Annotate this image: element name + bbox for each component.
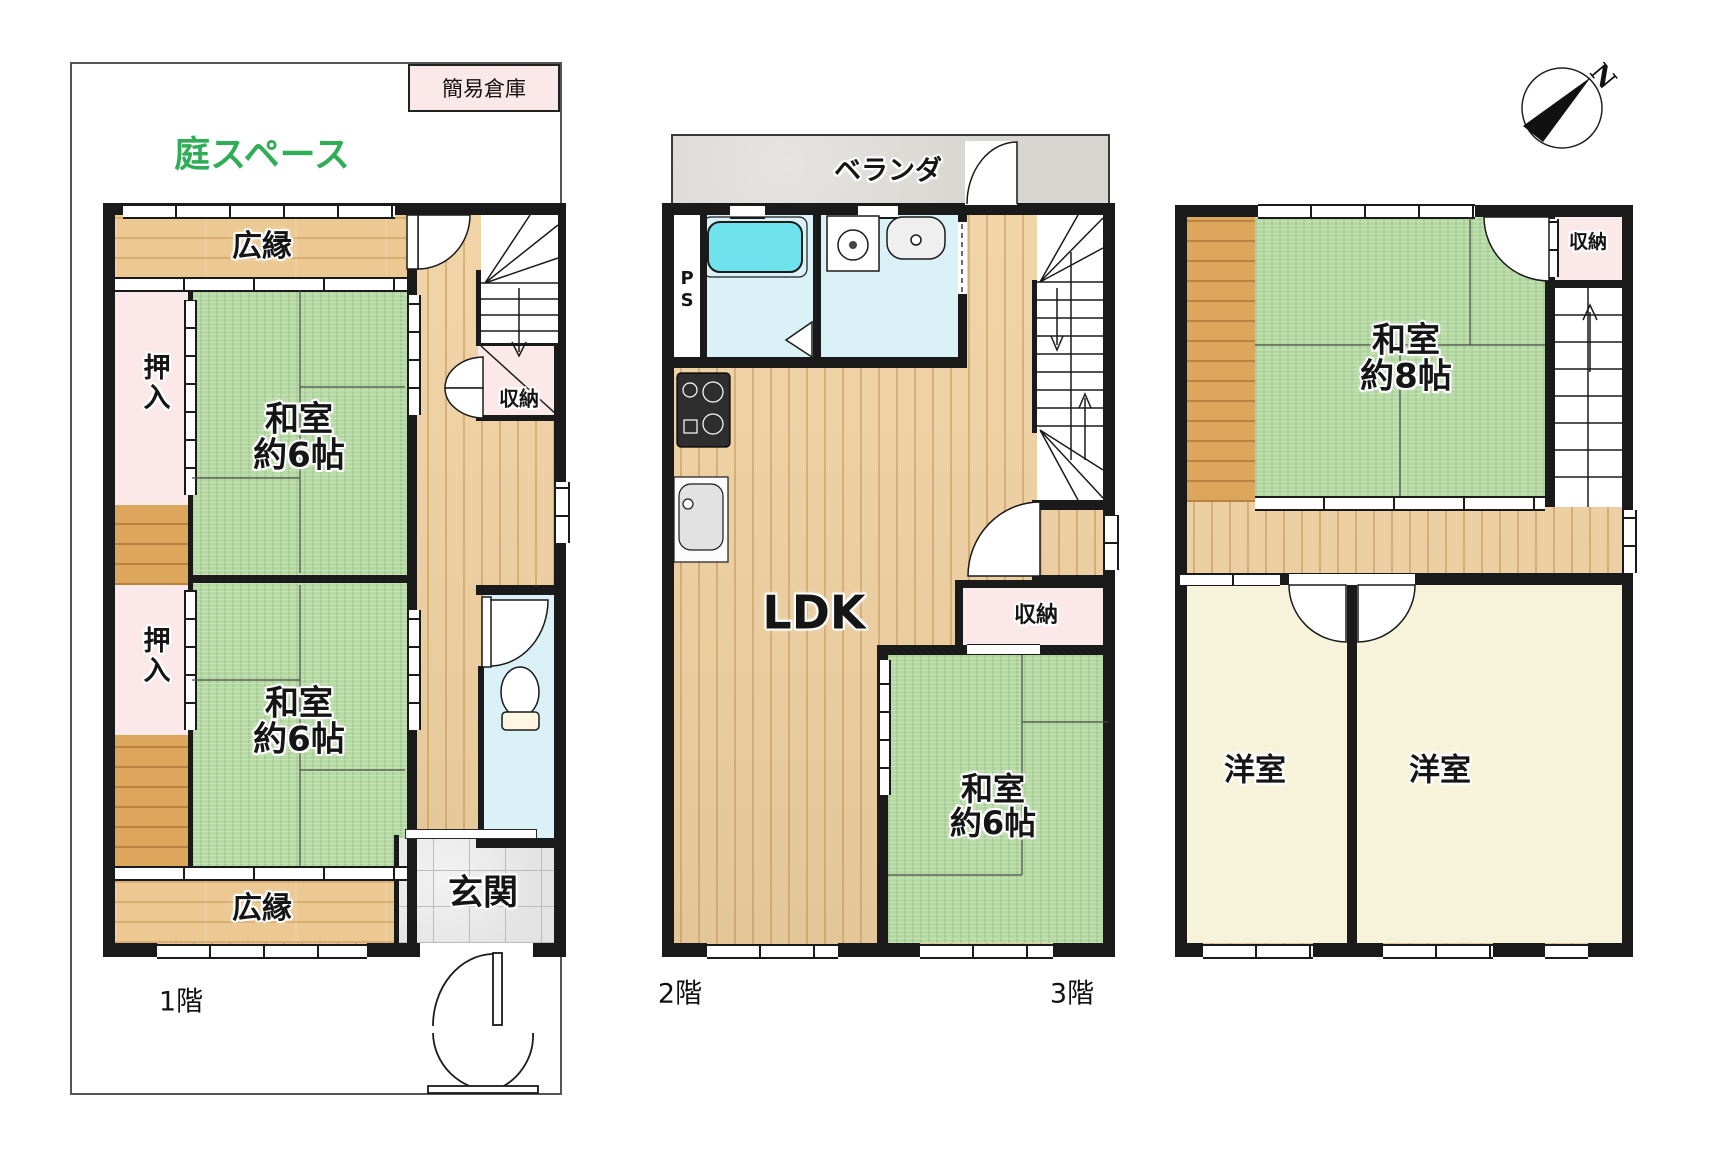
f3-wall-bottom-d	[1588, 943, 1633, 957]
f1-wall-shuno-btm	[476, 415, 566, 421]
f3-corridor-slide	[1180, 574, 1280, 586]
f2-shuno-label: 収納	[1014, 604, 1058, 628]
f2-caption: 2階	[658, 972, 702, 1011]
f1-caption: 1階	[159, 980, 203, 1019]
f3-window-top	[1258, 204, 1475, 219]
f1-shoji-top	[115, 277, 407, 292]
floorplan-canvas: 簡易倉庫 庭スペース	[0, 0, 1712, 1154]
f3-window-bottom-a	[1203, 944, 1313, 959]
f2-wall-bath-btm	[662, 357, 967, 368]
shed-label: 簡易倉庫	[442, 73, 526, 103]
f3-wall-bottom-c	[1493, 943, 1545, 957]
f1-washitsu-top-line1: 和室	[253, 402, 345, 438]
f2-wall-understair	[1032, 500, 1115, 510]
f2-wall-shuno-top	[955, 580, 1115, 588]
f1-washitsu-bottom-label: 和室 約6帖	[253, 686, 345, 759]
f2-wall-bottom-a	[662, 943, 707, 957]
f2-wall-ps	[700, 215, 707, 357]
f1-oshiire-top-label: 押入	[139, 353, 168, 413]
f1-washitsu-top-line2: 約6帖	[253, 438, 345, 474]
f1-shuno-label: 収納	[499, 388, 539, 409]
f3-yoshitsu-right-label: 洋室	[1409, 754, 1471, 787]
f2-veranda-label: ベランダ	[834, 158, 942, 187]
f2-washitsu-door	[878, 660, 891, 795]
f1-genkan-step	[405, 829, 537, 839]
f1-wall-left	[103, 203, 115, 957]
f1-window-top	[123, 204, 395, 219]
compass-north-label: N	[1583, 58, 1621, 95]
f1-hiroen-top-label: 広縁	[232, 231, 292, 263]
f1-window-right	[554, 482, 570, 543]
f3-washitsu-line2: 約8帖	[1360, 359, 1452, 395]
shed-box: 簡易倉庫	[408, 64, 560, 112]
f1-wall-shuno-top	[476, 340, 566, 346]
f2-wall-left	[662, 203, 674, 957]
f3-window-bottom-b	[1383, 944, 1493, 959]
f2-ldk-label: LDK	[762, 588, 865, 637]
f3-door-gap	[1289, 574, 1415, 585]
f1-shoji-bottom	[115, 866, 407, 881]
f2-wall-shuno-left	[955, 580, 963, 653]
f3-wall-divider	[1347, 585, 1357, 943]
f1-oshiire-door-2	[184, 590, 197, 730]
f1-genkan-label: 玄関	[448, 875, 518, 912]
f2-window-landing	[1103, 515, 1119, 570]
f3-washitsu-line1: 和室	[1360, 323, 1452, 359]
f1-slide-door-2	[407, 610, 421, 730]
f3-caption: 3階	[1050, 972, 1094, 1011]
f3-yoshitsu-right	[1357, 585, 1622, 943]
f3-shuno-door	[1546, 219, 1559, 277]
f2-washitsu-line1: 和室	[950, 772, 1036, 806]
f3-wall-shuno-btm	[1545, 280, 1633, 288]
garden-label: 庭スペース	[174, 137, 350, 176]
f2-window-bottom-washitsu	[920, 944, 1053, 959]
f3-yoshitsu-left-label: 洋室	[1224, 754, 1286, 787]
f2-wall-wash-right	[958, 213, 967, 360]
f2-bathroom	[702, 215, 813, 357]
compass-icon: N	[1522, 58, 1622, 148]
f2-window-bottom-ldk	[707, 944, 838, 959]
f1-wall-bottom-a	[103, 943, 157, 957]
f2-washitsu-line2: 約6帖	[950, 806, 1036, 840]
f2-window-top-b	[858, 204, 898, 219]
f1-window-bottom	[157, 944, 367, 959]
f2-window-top-a	[730, 204, 765, 219]
f2-washitsu-label: 和室 約6帖	[950, 772, 1036, 840]
f1-wall-bottom-b	[367, 943, 420, 957]
f1-alcove-2	[115, 735, 192, 868]
f1-wall-wc-left	[478, 666, 484, 838]
f3-window-bottom-c	[1545, 944, 1588, 959]
f1-slide-door-1	[407, 295, 421, 415]
f1-alcove-1	[115, 505, 192, 585]
f2-shuno-door	[967, 644, 1040, 655]
f2-ps-label: PS	[677, 268, 696, 312]
f2-wall-bath	[813, 215, 821, 357]
f1-wall-wc-btm	[476, 838, 566, 848]
f2-wall-stair	[1032, 280, 1045, 433]
f1-hiroen-bottom-label: 広縁	[232, 893, 292, 925]
f1-wall-stair	[476, 270, 485, 345]
f1-wall-mid	[188, 575, 417, 583]
f1-oshiire-door-1	[184, 300, 197, 495]
f1-wall-genkan	[394, 835, 399, 943]
f1-wall-wc-top	[476, 585, 566, 595]
f1-toilet-room	[484, 595, 558, 838]
f1-washitsu-top-label: 和室 約6帖	[253, 402, 345, 475]
f2-washroom	[821, 215, 958, 357]
f1-oshiire-bottom-label: 押入	[139, 626, 168, 686]
f1-wall-bottom-c	[533, 943, 566, 957]
f1-washitsu-bottom-line2: 約6帖	[253, 722, 345, 758]
f3-window-corridor	[1622, 510, 1637, 573]
f3-board-strip	[1187, 217, 1255, 502]
f3-wall-bottom-b	[1313, 943, 1383, 957]
f3-shoji-bottom	[1255, 496, 1545, 511]
f1-entrance-gap	[420, 943, 533, 957]
f2-wall-bottom-c	[1053, 943, 1115, 957]
f3-washitsu-label: 和室 約8帖	[1360, 323, 1452, 396]
f3-shuno-label: 収納	[1569, 232, 1607, 252]
f1-washitsu-bottom-line1: 和室	[253, 686, 345, 722]
f3-wall-bottom-a	[1175, 943, 1203, 957]
